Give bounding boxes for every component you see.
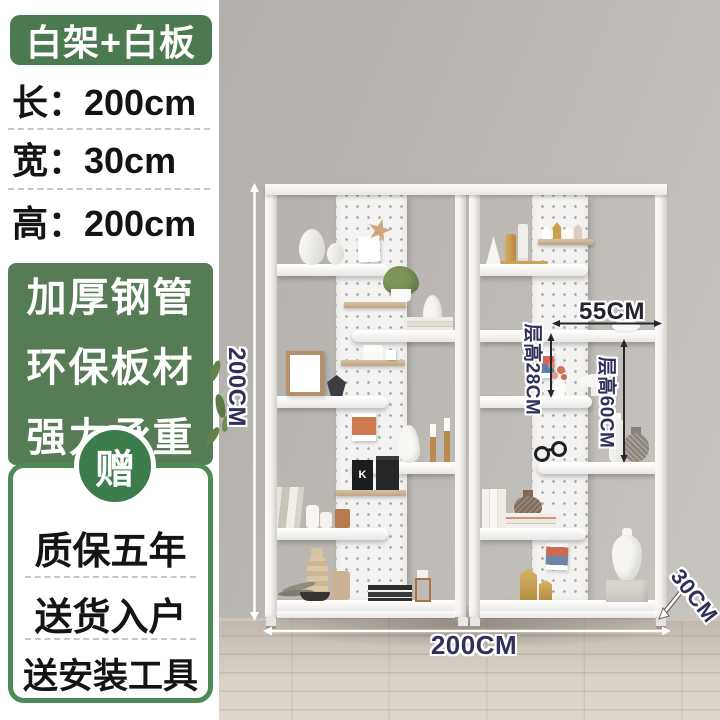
product-image: ★ K [0, 0, 720, 720]
shelf-board [480, 264, 588, 276]
candlestick [430, 424, 436, 462]
dice-ornament [386, 350, 396, 360]
adjustable-foot [470, 617, 480, 629]
shelf-board [480, 528, 586, 540]
divider [8, 188, 210, 190]
adjustable-foot [656, 617, 666, 629]
service-tools: 送安装工具 [13, 648, 208, 699]
pump-bottle [518, 224, 528, 264]
dark-bowl [300, 592, 330, 601]
candlestick [444, 418, 450, 462]
copper-cup [335, 509, 350, 528]
wood-wall-shelf [538, 239, 594, 245]
width-spec: 宽：30cm [0, 132, 219, 184]
shelf-board [277, 264, 388, 276]
book-stack [506, 513, 556, 528]
base-beam [277, 611, 455, 618]
feature-line: 加厚钢管 [27, 265, 195, 323]
white-jar [306, 505, 319, 528]
black-book: K [352, 460, 373, 490]
adjustable-foot [266, 617, 276, 629]
gift-badge: 赠 [74, 425, 156, 507]
tier-height-60-label: 层高60CM [595, 343, 622, 463]
service-warranty: 质保五年 [13, 520, 208, 575]
white-vase-small [327, 243, 344, 265]
flower-blossom [548, 362, 555, 369]
frame-top-beam [265, 184, 667, 195]
marble-plinth [606, 580, 648, 602]
feature-line: 环保板材 [27, 335, 195, 393]
flower-blossom [557, 366, 565, 374]
adjustable-foot [458, 617, 468, 629]
shelf-width-label: 55CM [572, 298, 652, 326]
flower-vase [553, 380, 565, 396]
wood-wall-shelf [336, 490, 406, 496]
info-panel: 白架+白板 长：200cm 宽：30cm 高：200cm 加厚钢管 环保板材 强… [0, 0, 219, 720]
shelf-board [277, 528, 388, 540]
picture-frame [286, 351, 324, 396]
tier-height-28-label: 层高28CM [521, 315, 548, 425]
textured-globe-vase [623, 433, 649, 462]
tan-cylinder-vase [331, 571, 350, 600]
service-delivery: 送货入户 [13, 586, 208, 641]
pinned-polaroid-orange [352, 413, 376, 441]
flower-blossom [551, 372, 558, 379]
shelf-board [538, 462, 656, 474]
shelf-board [277, 396, 388, 408]
shelf-board [480, 330, 656, 342]
gold-bottle [505, 234, 516, 264]
length-spec: 长：200cm [0, 74, 219, 126]
divider [25, 638, 196, 640]
white-vase [299, 229, 325, 265]
divider [8, 128, 210, 130]
shelf-board [352, 330, 455, 342]
white-books-upright [482, 489, 506, 528]
copper-stand [415, 578, 431, 602]
wood-wall-shelf [344, 302, 406, 308]
black-book [376, 456, 399, 490]
gold-tray [500, 261, 548, 264]
white-planter [363, 345, 383, 360]
height-spec: 高：200cm [0, 194, 219, 248]
book-stack [407, 317, 453, 330]
frame-post [455, 185, 466, 617]
pinned-polaroid-art2 [546, 543, 569, 571]
wood-wall-shelf [341, 360, 405, 366]
width-dimension-label: 200CM [424, 630, 524, 661]
frame-post [469, 185, 480, 617]
base-beam [480, 611, 656, 618]
service-box: 赠 质保五年 送货入户 送安装工具 [8, 463, 213, 703]
plant-pot [391, 289, 411, 302]
frame-post [655, 185, 667, 617]
variant-badge: 白架+白板 [10, 15, 212, 65]
frame-post [265, 185, 277, 617]
white-jar-small [320, 512, 332, 528]
divider [25, 576, 196, 578]
dark-book-stack [368, 585, 412, 601]
height-dimension-label: 200CM [222, 342, 250, 432]
